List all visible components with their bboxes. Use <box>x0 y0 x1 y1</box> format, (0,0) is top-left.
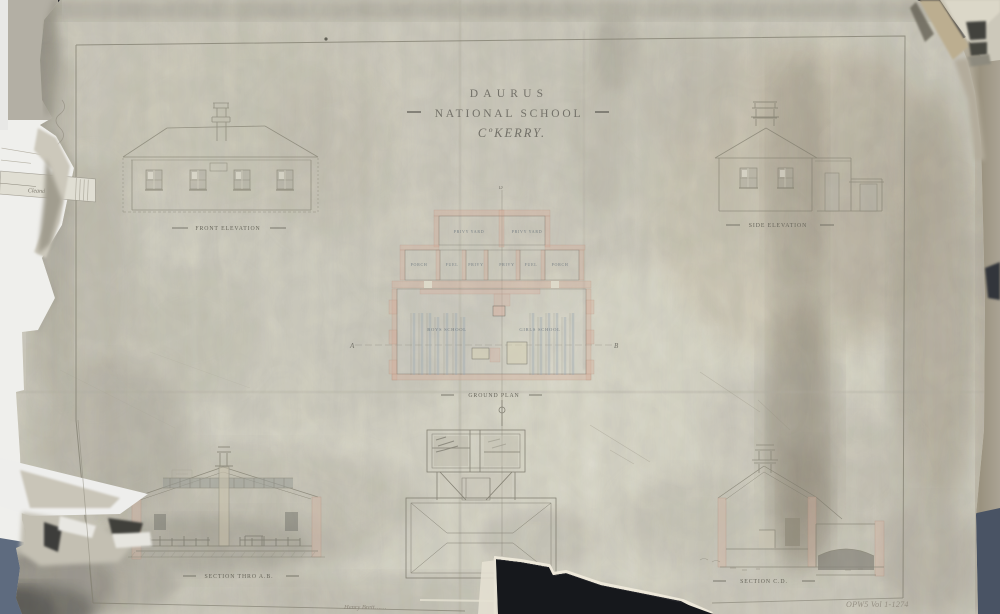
svg-text:Cleand: Cleand <box>28 188 47 195</box>
svg-text:SECTION C.D.: SECTION C.D. <box>740 579 788 585</box>
svg-text:NATIONAL SCHOOL: NATIONAL SCHOOL <box>435 108 584 120</box>
svg-text:SECTION THRO A.B.: SECTION THRO A.B. <box>205 574 274 580</box>
svg-text:GIRLS SCHOOL: GIRLS SCHOOL <box>519 327 560 332</box>
svg-text:BOYS SCHOOL: BOYS SCHOOL <box>427 327 466 332</box>
svg-text:CºKERRY.: CºKERRY. <box>478 126 546 140</box>
svg-text:D: D <box>499 186 503 191</box>
svg-text:PORCH: PORCH <box>411 262 428 267</box>
svg-text:OPW5 Vol 1-1274: OPW5 Vol 1-1274 <box>846 600 909 609</box>
svg-text:A: A <box>349 342 355 350</box>
svg-text:PRIVY: PRIVY <box>499 262 515 267</box>
svg-text:FUEL: FUEL <box>525 262 538 267</box>
svg-text:PRIVY YARD: PRIVY YARD <box>512 229 543 234</box>
svg-text:Henry Brett……: Henry Brett…… <box>343 604 386 611</box>
svg-text:B: B <box>614 342 619 350</box>
svg-text:GROUND PLAN: GROUND PLAN <box>468 393 519 399</box>
svg-text:PRIVY YARD: PRIVY YARD <box>454 229 485 234</box>
svg-text:PORCH: PORCH <box>552 262 569 267</box>
svg-text:PRIVY: PRIVY <box>468 262 484 267</box>
svg-text:FRONT ELEVATION: FRONT ELEVATION <box>195 226 260 232</box>
svg-text:FUEL: FUEL <box>446 262 459 267</box>
svg-text:DAURUS: DAURUS <box>470 88 549 100</box>
svg-text:SIDE ELEVATION: SIDE ELEVATION <box>749 223 807 229</box>
